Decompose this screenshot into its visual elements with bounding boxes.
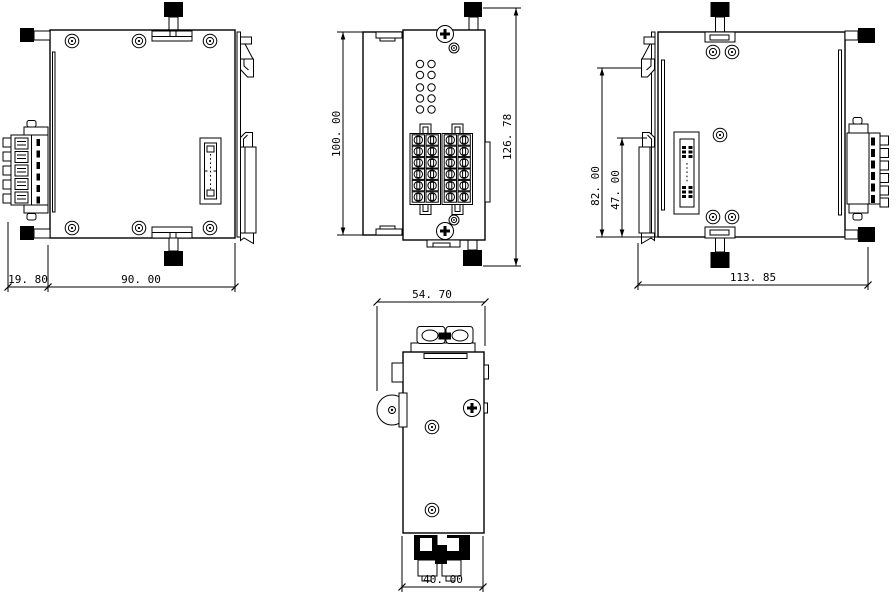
module-body bbox=[403, 352, 484, 533]
screw-icon bbox=[425, 420, 439, 434]
pivot-tab bbox=[377, 393, 407, 427]
dim-label-90-00: 90. 00 bbox=[121, 273, 161, 286]
mounting-knob-left-bottom bbox=[20, 226, 50, 240]
mounting-knob-top bbox=[164, 2, 183, 31]
module-body bbox=[50, 30, 235, 238]
mounting-knob-left-top bbox=[20, 28, 50, 42]
dim-label-100-00: 100. 00 bbox=[330, 111, 343, 157]
dim-label-19-80: 19. 80 bbox=[8, 273, 48, 286]
card-edge-connector bbox=[674, 132, 699, 214]
side-flap bbox=[363, 32, 403, 235]
screw-icon bbox=[132, 34, 146, 48]
terminal-block-right bbox=[442, 124, 473, 215]
view-right-side: 82. 00 47. 00 113. 85 bbox=[589, 2, 889, 290]
screw-icon bbox=[706, 210, 720, 224]
dim-label-126-78: 126. 78 bbox=[501, 114, 514, 160]
din-slider-top bbox=[152, 31, 192, 41]
side-rib bbox=[484, 365, 489, 379]
screw-icon bbox=[449, 215, 459, 225]
mounting-knob-top bbox=[464, 2, 482, 30]
screw-icon bbox=[65, 34, 79, 48]
dim-label-82-00: 82. 00 bbox=[589, 166, 602, 206]
phillips-screw-icon bbox=[437, 223, 454, 240]
screw-icon bbox=[713, 128, 727, 142]
side-lug bbox=[392, 363, 403, 382]
technical-drawing: 19. 80 90. 00 bbox=[0, 0, 896, 596]
screw-icon bbox=[725, 210, 739, 224]
screw-icon bbox=[425, 503, 439, 517]
terminal-connector-right bbox=[847, 118, 889, 221]
bottom-tab bbox=[427, 240, 460, 247]
view-left-side: 19. 80 90. 00 bbox=[3, 2, 256, 292]
screw-icon bbox=[132, 221, 146, 235]
mounting-knob-right-bottom bbox=[845, 227, 875, 242]
mounting-knob-right-top bbox=[845, 28, 875, 43]
din-slider-bottom bbox=[152, 227, 192, 266]
dimension-overall-width: 113. 85 bbox=[635, 243, 872, 290]
screw-icon bbox=[449, 43, 459, 53]
side-rib bbox=[485, 142, 490, 202]
side-rib bbox=[484, 403, 488, 413]
terminal-connector-left bbox=[3, 121, 48, 221]
mounting-knob-bottom bbox=[463, 240, 482, 266]
din-slider-bottom bbox=[705, 227, 735, 268]
phillips-screw-icon bbox=[437, 26, 454, 43]
card-edge-connector bbox=[200, 138, 221, 204]
terminal-block-left bbox=[410, 124, 441, 215]
dim-label-113-85: 113. 85 bbox=[730, 271, 776, 284]
technical-drawing-page: 19. 80 90. 00 bbox=[0, 0, 896, 596]
screw-icon bbox=[203, 34, 217, 48]
dim-label-47-00: 47. 00 bbox=[609, 170, 622, 210]
din-latch-head bbox=[411, 327, 475, 353]
screw-icon bbox=[65, 221, 79, 235]
din-slider-top bbox=[705, 32, 735, 42]
phillips-screw-icon bbox=[464, 400, 481, 417]
dimension-overall-height: 126. 78 bbox=[483, 8, 521, 266]
dimension-body-height: 100. 00 bbox=[330, 32, 367, 235]
screw-icon bbox=[706, 45, 720, 59]
screw-icon bbox=[725, 45, 739, 59]
screw-icon bbox=[203, 221, 217, 235]
dim-label-54-70: 54. 70 bbox=[412, 288, 452, 301]
mounting-knob-top bbox=[711, 2, 730, 32]
dim-label-40-00: 40. 00 bbox=[423, 573, 463, 586]
view-front: 100. 00 126. 78 bbox=[330, 2, 521, 266]
din-rail-clip bbox=[237, 32, 256, 244]
view-bottom: 54. 70 40. 00 bbox=[374, 288, 489, 592]
